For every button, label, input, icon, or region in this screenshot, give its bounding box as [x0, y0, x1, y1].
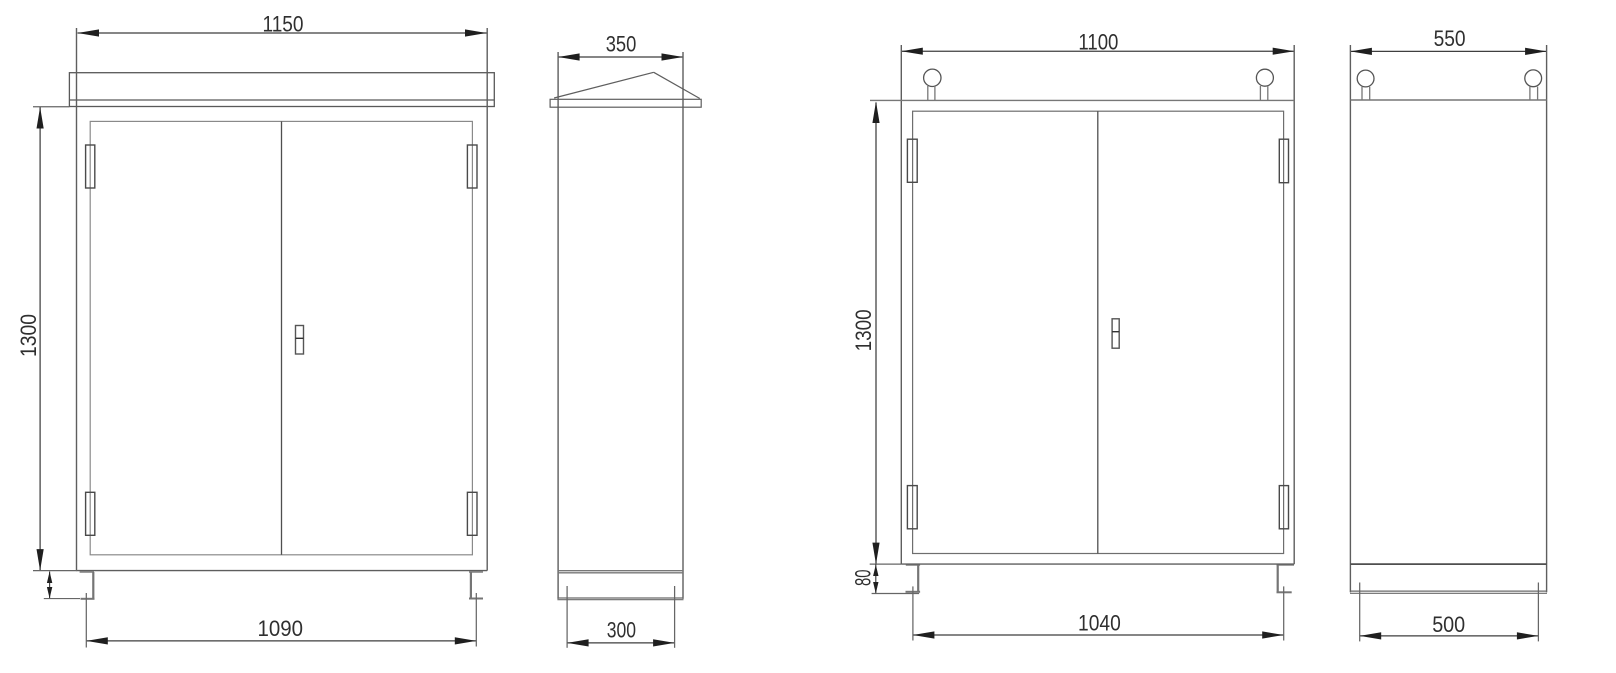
svg-text:350: 350: [606, 32, 637, 57]
svg-text:550: 550: [1434, 26, 1466, 51]
svg-text:1040: 1040: [1078, 611, 1121, 636]
svg-text:1300: 1300: [851, 309, 876, 351]
svg-text:80: 80: [851, 570, 876, 587]
svg-text:300: 300: [607, 618, 636, 643]
svg-text:500: 500: [1432, 612, 1465, 637]
svg-text:1090: 1090: [258, 616, 304, 641]
svg-text:1300: 1300: [16, 314, 41, 357]
